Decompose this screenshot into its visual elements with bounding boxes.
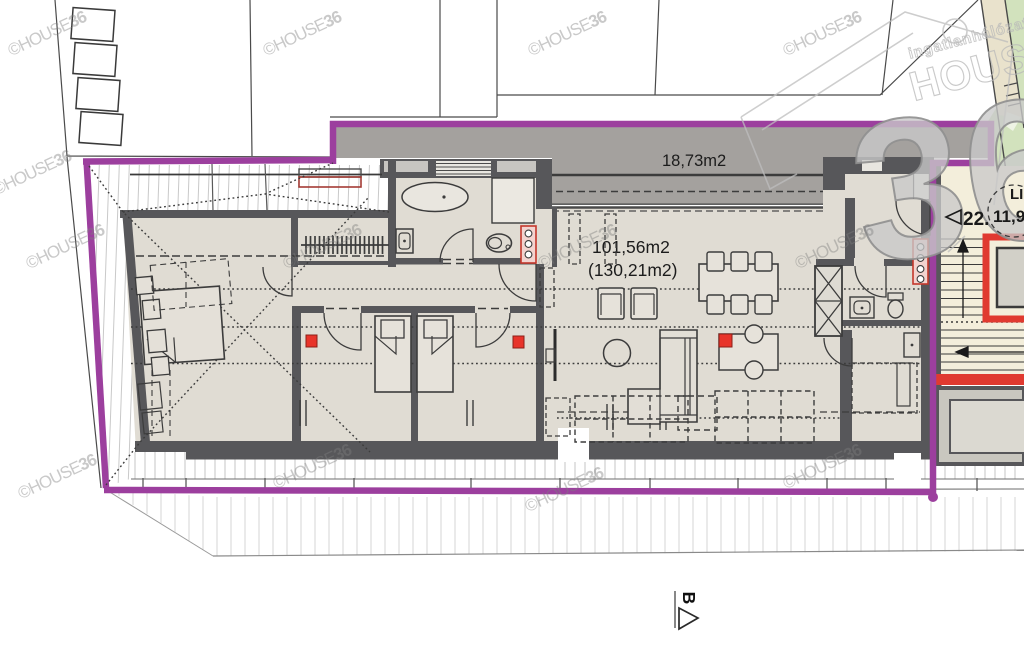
svg-text:B: B [679, 592, 699, 605]
svg-text:18,73m2: 18,73m2 [662, 152, 726, 170]
svg-text:36: 36 [837, 52, 1024, 307]
svg-text:LI: LI [1010, 186, 1023, 203]
svg-text:(130,21m2): (130,21m2) [588, 260, 678, 280]
svg-text:22.: 22. [963, 209, 989, 230]
svg-text:11,9: 11,9 [993, 207, 1024, 226]
